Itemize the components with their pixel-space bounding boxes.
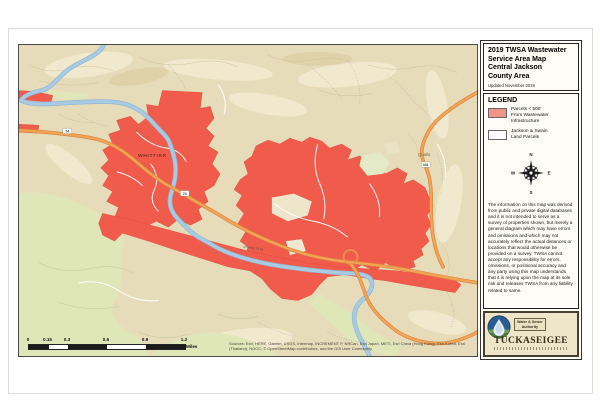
scale-bar-segments [28, 344, 186, 350]
compass-s-label: S [529, 190, 532, 195]
scale-segment [49, 345, 69, 349]
logo-authority-label: Water & Sewer Authority [514, 318, 546, 331]
logo-authority-line: Authority [517, 325, 543, 330]
route-shield-74-mid: 74 [180, 191, 189, 196]
route-shield-74-west: 74 [63, 128, 72, 133]
scale-segment [107, 345, 146, 349]
legend-item-land-parcels: Jackson & Swain Land Parcels [488, 129, 574, 141]
map-title-line: Central Jackson [488, 64, 574, 73]
legend-label-line: Land Parcels [511, 135, 548, 141]
scale-bar-ticks: 0 0.15 0.3 0.6 0.9 1.2 [28, 337, 184, 343]
logo-name: TUCKASEIGEE [487, 336, 575, 346]
legend-header: LEGEND [488, 97, 574, 104]
map-canvas: 74 74 441 WHITTIER Qualla US Hwy 74 W [19, 45, 477, 356]
svg-text:74: 74 [183, 192, 187, 196]
scale-bar: 0 0.15 0.3 0.6 0.9 1.2 Miles [28, 337, 198, 353]
scale-tick: 0.15 [43, 337, 52, 342]
map-title-line: Service Area Map [488, 56, 574, 65]
compass-n-label: N [529, 152, 532, 157]
legend-item-parcels-500: Parcels < 500' From Wastewater Infrastru… [488, 107, 574, 125]
scale-segment [68, 345, 107, 349]
side-panel: 2019 TWSA Wastewater Service Area Map Ce… [480, 40, 582, 360]
legend-label: Jackson & Swain Land Parcels [511, 129, 548, 141]
compass-e-label: E [547, 171, 550, 176]
logo-tagline-strip [494, 347, 568, 350]
route-shield-441: 441 [421, 162, 430, 167]
updated-note: Updated November 2019 [488, 83, 574, 88]
compass-wrap: N E S W [488, 148, 574, 196]
attribution-text: Sources: Esri, HERE, Garmin, USGS, Inter… [229, 342, 476, 352]
legend-label: Parcels < 500' From Wastewater Infrastru… [511, 107, 549, 125]
disclaimer-text: The information on this map was derived … [488, 202, 574, 294]
twsa-logo: Water & Sewer Authority TUCKASEIGEE [483, 311, 579, 357]
svg-text:74: 74 [65, 129, 69, 133]
community-label: Qualla [418, 152, 431, 157]
scale-tick: 0.9 [142, 337, 148, 342]
legend-swatch-service-area [488, 108, 507, 118]
map-title-line: County Area [488, 73, 574, 82]
scale-tick: 0 [27, 337, 30, 342]
scale-tick: 1.2 [181, 337, 187, 342]
logo-authority-line: Water & Sewer [517, 320, 543, 325]
scale-segment [29, 345, 49, 349]
scale-tick: 0.3 [64, 337, 70, 342]
compass-rose-icon: N E S W [509, 148, 553, 196]
town-label: WHITTIER [138, 153, 167, 159]
map-title-line: 2019 TWSA Wastewater [488, 47, 574, 56]
map-sheet: 74 74 441 WHITTIER Qualla US Hwy 74 W 0 … [0, 0, 600, 400]
scale-segment [146, 345, 185, 349]
scale-tick: 0.6 [103, 337, 109, 342]
compass-w-label: W [511, 171, 516, 176]
legend-section: LEGEND Parcels < 500' From Wastewater In… [483, 93, 579, 309]
legend-label-line: Infrastructure [511, 119, 549, 125]
svg-text:441: 441 [423, 163, 429, 167]
scale-unit-label: Miles [186, 344, 198, 349]
map-frame: 74 74 441 WHITTIER Qualla US Hwy 74 W 0 … [18, 44, 478, 357]
map-title-block: 2019 TWSA Wastewater Service Area Map Ce… [483, 43, 579, 91]
legend-swatch-land-parcels [488, 130, 507, 140]
